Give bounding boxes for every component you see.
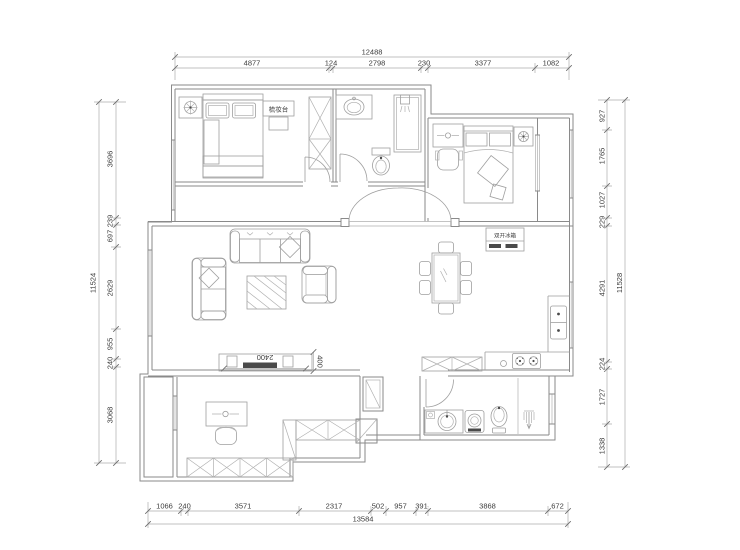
dim-right-seg-0: 927 bbox=[598, 110, 607, 123]
dining-chair bbox=[439, 242, 454, 253]
fridge: 双开冰箱 bbox=[486, 228, 524, 251]
pillow bbox=[466, 133, 487, 146]
bedroom2-bay-window bbox=[536, 135, 540, 191]
dim-right-seg-2: 1027 bbox=[598, 192, 607, 209]
dim-right-seg-5: 224 bbox=[598, 358, 607, 371]
dim-top-seg-0: 4877 bbox=[244, 59, 261, 68]
bathroom2-door-swing bbox=[426, 379, 454, 407]
dim-right-seg-6: 1727 bbox=[598, 389, 607, 406]
study-wardrobe-L bbox=[283, 420, 360, 460]
two-seat-sofa bbox=[192, 258, 226, 320]
dim-left-seg-3: 2629 bbox=[106, 280, 115, 297]
dim-left-seg-0: 3696 bbox=[106, 151, 115, 168]
floor-plan-canvas: 梳妆台 bbox=[0, 0, 740, 550]
pillow bbox=[490, 133, 511, 146]
dim-bottom-seg-5: 957 bbox=[394, 502, 407, 511]
gas-stove bbox=[513, 354, 541, 369]
plant-icon bbox=[184, 101, 198, 115]
dim-top-seg-1: 124 bbox=[325, 59, 338, 68]
dressing-table-label: 梳妆台 bbox=[269, 105, 289, 114]
dim-bottom-seg-7: 3868 bbox=[479, 502, 496, 511]
study-chair bbox=[216, 428, 237, 445]
study-wardrobe-row bbox=[187, 458, 293, 477]
dining-chair bbox=[439, 303, 454, 314]
sink-drain bbox=[501, 361, 507, 367]
dining-table bbox=[432, 253, 460, 303]
dimension-top: 12488 4877 124 2798 230 3377 1082 bbox=[172, 48, 572, 81]
fridge-label: 双开冰箱 bbox=[494, 232, 517, 240]
bathroom2-fixtures bbox=[425, 378, 534, 434]
dim-bottom-seg-2: 3571 bbox=[235, 502, 252, 511]
floor-plan: 梳妆台 bbox=[0, 0, 740, 550]
walls bbox=[140, 85, 573, 481]
bathroom1-fixtures bbox=[336, 95, 421, 175]
desk-chair bbox=[438, 149, 459, 170]
dim-top-seg-4: 3377 bbox=[475, 59, 492, 68]
bed-headboard bbox=[203, 94, 263, 100]
kitchen-counter-south bbox=[485, 352, 570, 370]
dim-top-seg-5: 1082 bbox=[543, 59, 560, 68]
entry-door-post-left bbox=[341, 219, 349, 227]
toilet bbox=[491, 407, 507, 434]
tv-cabinet-depth-dim: 400 bbox=[316, 355, 325, 368]
vanity-counter bbox=[425, 410, 463, 433]
dining-chair bbox=[461, 281, 472, 295]
bedroom1-furniture bbox=[179, 94, 263, 178]
dim-right-seg-3: 229 bbox=[598, 216, 607, 229]
dim-left-total: 11524 bbox=[89, 273, 98, 293]
tv-cabinet-width-dim: 2400 bbox=[257, 353, 274, 362]
dim-left-seg-1: 239 bbox=[106, 215, 115, 228]
sofa-cushion bbox=[279, 236, 300, 257]
dressing-stool bbox=[269, 117, 288, 130]
bed-runner bbox=[204, 120, 219, 164]
dim-left-seg-6: 3068 bbox=[106, 407, 115, 424]
dim-bottom-total: 13584 bbox=[353, 515, 374, 524]
dim-top-seg-2: 2798 bbox=[369, 59, 386, 68]
entry-door-post-right bbox=[451, 219, 459, 227]
study-furniture bbox=[187, 402, 360, 477]
sofa-cushion bbox=[199, 268, 219, 288]
speaker bbox=[227, 356, 237, 367]
dining-chair bbox=[420, 262, 431, 276]
dim-bottom-seg-8: 672 bbox=[551, 502, 564, 511]
bed-foot-blanket bbox=[203, 156, 263, 166]
dim-bottom-seg-4: 502 bbox=[372, 502, 385, 511]
bathroom1-door-swing bbox=[340, 154, 367, 182]
dim-bottom-seg-0: 1066 bbox=[156, 502, 173, 511]
dim-bottom-seg-6: 391 bbox=[415, 502, 428, 511]
armchair bbox=[302, 266, 336, 303]
dim-left-seg-2: 697 bbox=[106, 230, 115, 243]
shoe-cabinet bbox=[422, 357, 482, 371]
dimension-bottom: 1066 240 3571 2317 502 957 391 3868 672 … bbox=[145, 502, 571, 529]
dining-chair bbox=[420, 281, 431, 295]
single-bed bbox=[464, 126, 513, 203]
dining-chair bbox=[461, 262, 472, 276]
plant-icon bbox=[518, 131, 529, 142]
dim-right-seg-1: 1765 bbox=[598, 148, 607, 165]
kitchen-fixtures: 双开冰箱 bbox=[422, 228, 570, 371]
toilet bbox=[372, 148, 390, 175]
dim-bottom-seg-3: 2317 bbox=[326, 502, 343, 511]
living-room-furniture: 2400 400 bbox=[192, 229, 336, 374]
dressing-table: 梳妆台 bbox=[263, 101, 294, 130]
tv bbox=[243, 363, 277, 369]
dim-left-seg-5: 240 bbox=[106, 357, 115, 370]
three-seat-sofa bbox=[230, 229, 310, 263]
dim-top-seg-3: 230 bbox=[418, 59, 431, 68]
shower-stall bbox=[394, 95, 421, 152]
dim-right-seg-7: 1338 bbox=[598, 438, 607, 455]
dim-left-seg-4: 955 bbox=[106, 338, 115, 351]
coffee-table bbox=[247, 276, 286, 309]
dimension-left: 3696 239 697 2629 955 240 3068 11524 bbox=[89, 99, 127, 466]
bedroom2-furniture bbox=[433, 124, 533, 203]
washing-machine bbox=[465, 411, 484, 433]
dining-furniture bbox=[420, 242, 472, 314]
bed-cushion-small bbox=[490, 184, 506, 200]
dim-right-total: 11528 bbox=[615, 273, 624, 293]
entry-double-door-swing bbox=[349, 188, 451, 221]
dim-bottom-seg-1: 240 bbox=[178, 502, 191, 511]
dim-top-total: 12488 bbox=[362, 48, 383, 57]
floor-drain-shower-icon bbox=[524, 411, 534, 429]
bed-cushion bbox=[478, 156, 509, 187]
balcony-inner bbox=[144, 377, 173, 477]
speaker bbox=[283, 356, 293, 367]
dimension-right: 927 1765 1027 229 4291 224 1727 1338 115… bbox=[598, 97, 631, 470]
dim-right-seg-4: 4291 bbox=[598, 280, 607, 297]
double-sink bbox=[551, 306, 567, 339]
washbasin bbox=[438, 410, 456, 431]
